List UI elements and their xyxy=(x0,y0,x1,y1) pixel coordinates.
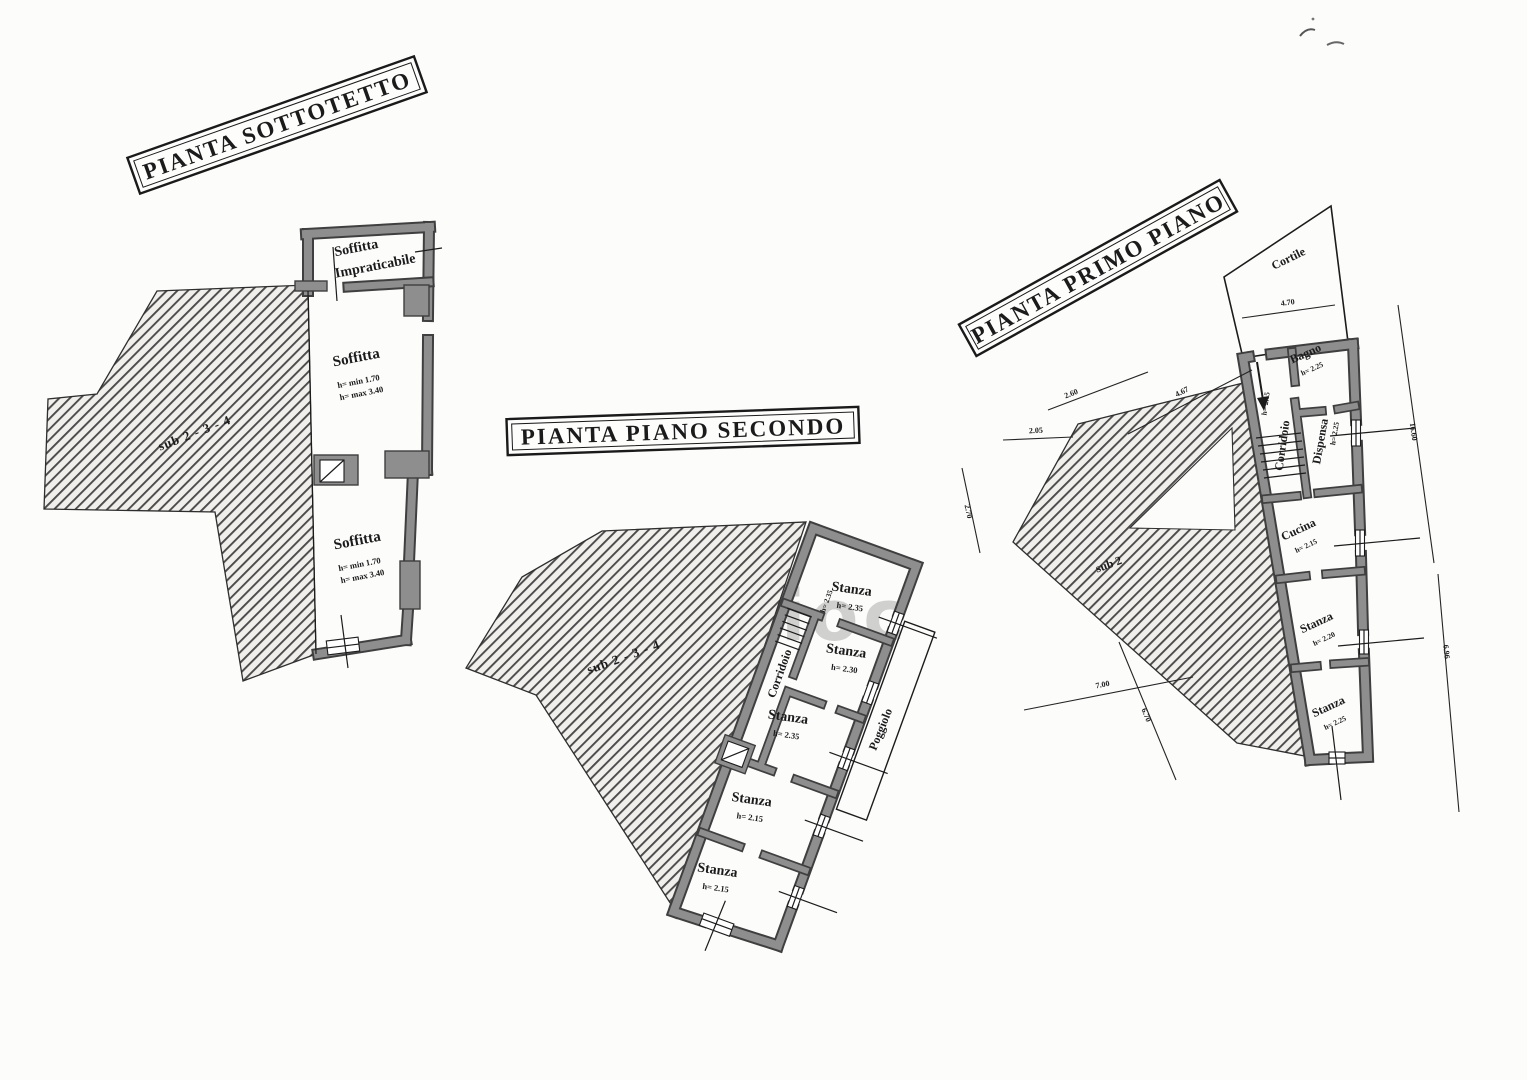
dim-right-short: 6.96 xyxy=(1441,644,1451,659)
plan-sottotetto: PIANTA SOTTOTETTO sub 2 - 3 - 4 xyxy=(44,56,442,681)
plan1-title-box: PIANTA SOTTOTETTO xyxy=(127,56,426,193)
room-label-soffitta-bottom: Soffitta xyxy=(332,529,382,554)
plan3-cortile: Cortile 4.70 xyxy=(1224,206,1348,358)
plan1-skylight-symbol xyxy=(320,460,344,482)
plan-piano-secondo: sub 2 - 3 - 4 PIANTA PIANO SECONDO xyxy=(466,407,958,989)
dim-small-diag: 2.60 xyxy=(1063,387,1079,400)
room-note-stanza2-p3: h= 2.25 xyxy=(1322,714,1347,732)
plan1-bottom-window xyxy=(326,615,359,668)
room-note-stanza1-p3: h= 2.20 xyxy=(1311,630,1336,648)
plan1-title: PIANTA SOTTOTETTO xyxy=(140,67,415,185)
room-note-bagno: h= 2.25 xyxy=(1299,360,1324,378)
plan2-roof-hatch-area xyxy=(466,522,806,912)
room-note-stanza5: h= 2.15 xyxy=(702,881,730,895)
ink-marks xyxy=(1300,18,1344,45)
plan3-title-box: PIANTA PRIMO PIANO xyxy=(959,180,1237,356)
plan3-title: PIANTA PRIMO PIANO xyxy=(967,188,1229,349)
room-note-cucina: h= 2.15 xyxy=(1293,537,1318,555)
plan-primo-piano: PIANTA PRIMO PIANO sub 2 Cortile 4.70 xyxy=(959,180,1459,812)
floorplan-drawing: PIANTA SOTTOTETTO sub 2 - 3 - 4 xyxy=(0,0,1527,1080)
room-label-poggiolo: Poggiolo xyxy=(866,706,895,752)
scanned-floorplan-page: PIANTA SOTTOTETTO sub 2 - 3 - 4 xyxy=(0,0,1527,1080)
dim-small-vert: 2.70 xyxy=(963,504,975,520)
room-note-stanza2: h= 2.30 xyxy=(831,662,859,676)
room-note-stanza3: h= 2.35 xyxy=(772,728,800,742)
dim-right-long: 16.60 xyxy=(1408,422,1419,441)
room-note-stanza4: h= 2.15 xyxy=(736,810,764,824)
plan2-title-box: PIANTA PIANO SECONDO xyxy=(506,407,859,455)
plan1-roof-hatch-area xyxy=(44,285,316,681)
dim-bottom-horiz: 7.00 xyxy=(1095,679,1110,691)
room-label-soffitta-mid: Soffitta xyxy=(331,346,381,371)
room-label-corridoio-p3: Corridoio xyxy=(1272,419,1293,471)
plan3-windows xyxy=(1329,420,1424,800)
plan3-roof-hatch-area xyxy=(1013,382,1310,757)
room-label-soffitta-impraticabile: Soffitta xyxy=(333,237,379,260)
room-label-stanza5: Stanza xyxy=(696,861,738,881)
room-note-corridoio-p3: h= 2.15 xyxy=(1259,391,1271,416)
room-label-stanza4: Stanza xyxy=(731,790,773,810)
dim-small-horiz: 2.05 xyxy=(1029,426,1043,436)
